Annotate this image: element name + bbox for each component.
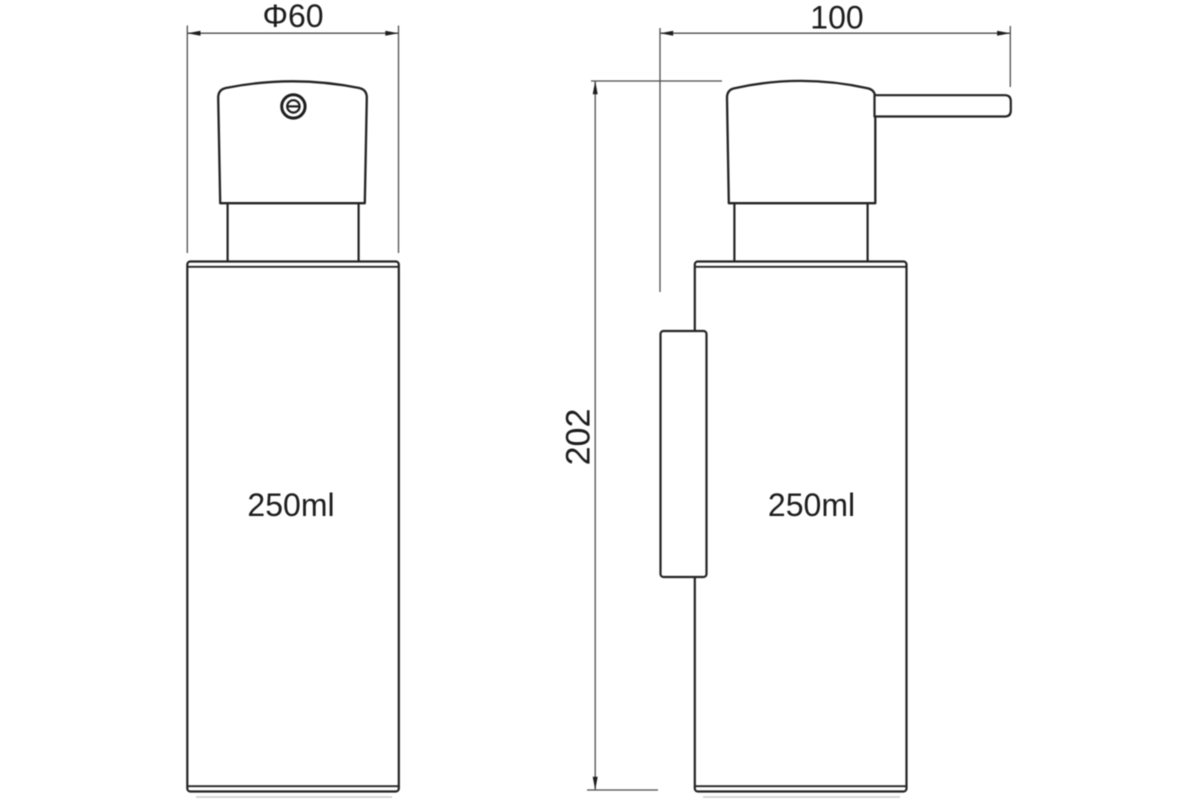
svg-text:250ml: 250ml [247,487,334,523]
svg-text:Φ60: Φ60 [262,0,323,34]
svg-text:100: 100 [810,0,863,36]
svg-text:202: 202 [560,409,598,466]
svg-text:250ml: 250ml [768,487,855,523]
